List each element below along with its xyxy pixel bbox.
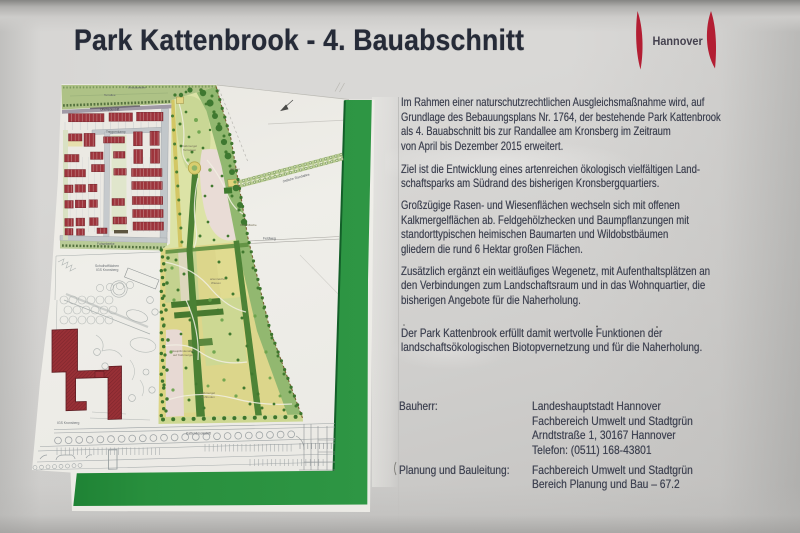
svg-text:Feldweg: Feldweg — [263, 237, 276, 241]
svg-text:Wiesen: Wiesen — [211, 281, 221, 285]
svg-text:Treppenkamp: Treppenkamp — [106, 130, 126, 134]
svg-text:Wiesen: Wiesen — [230, 167, 240, 171]
svg-text:Wroclawallee: Wroclawallee — [128, 86, 146, 90]
svg-text:IGS Kronsberg: IGS Kronsberg — [57, 421, 80, 425]
svg-text:IGS Kronsberg: IGS Kronsberg — [96, 268, 119, 272]
svg-text:Hannover: Hannover — [653, 34, 704, 48]
svg-text:Rasenfläche: Rasenfläche — [240, 223, 257, 227]
svg-text:Fuhsebeeke: Fuhsebeeke — [97, 242, 115, 246]
svg-text:Kattenbrookstrift: Kattenbrookstrift — [186, 432, 211, 436]
svg-text:Terrallee: Terrallee — [104, 93, 116, 97]
svg-text:Terrassen: Terrassen — [183, 148, 197, 152]
svg-text:auf Kalkmergel: auf Kalkmergel — [173, 353, 193, 357]
svg-text:Rohboden: Rohboden — [201, 395, 215, 399]
svg-text:Oheriedentrift: Oheriedentrift — [100, 108, 119, 112]
